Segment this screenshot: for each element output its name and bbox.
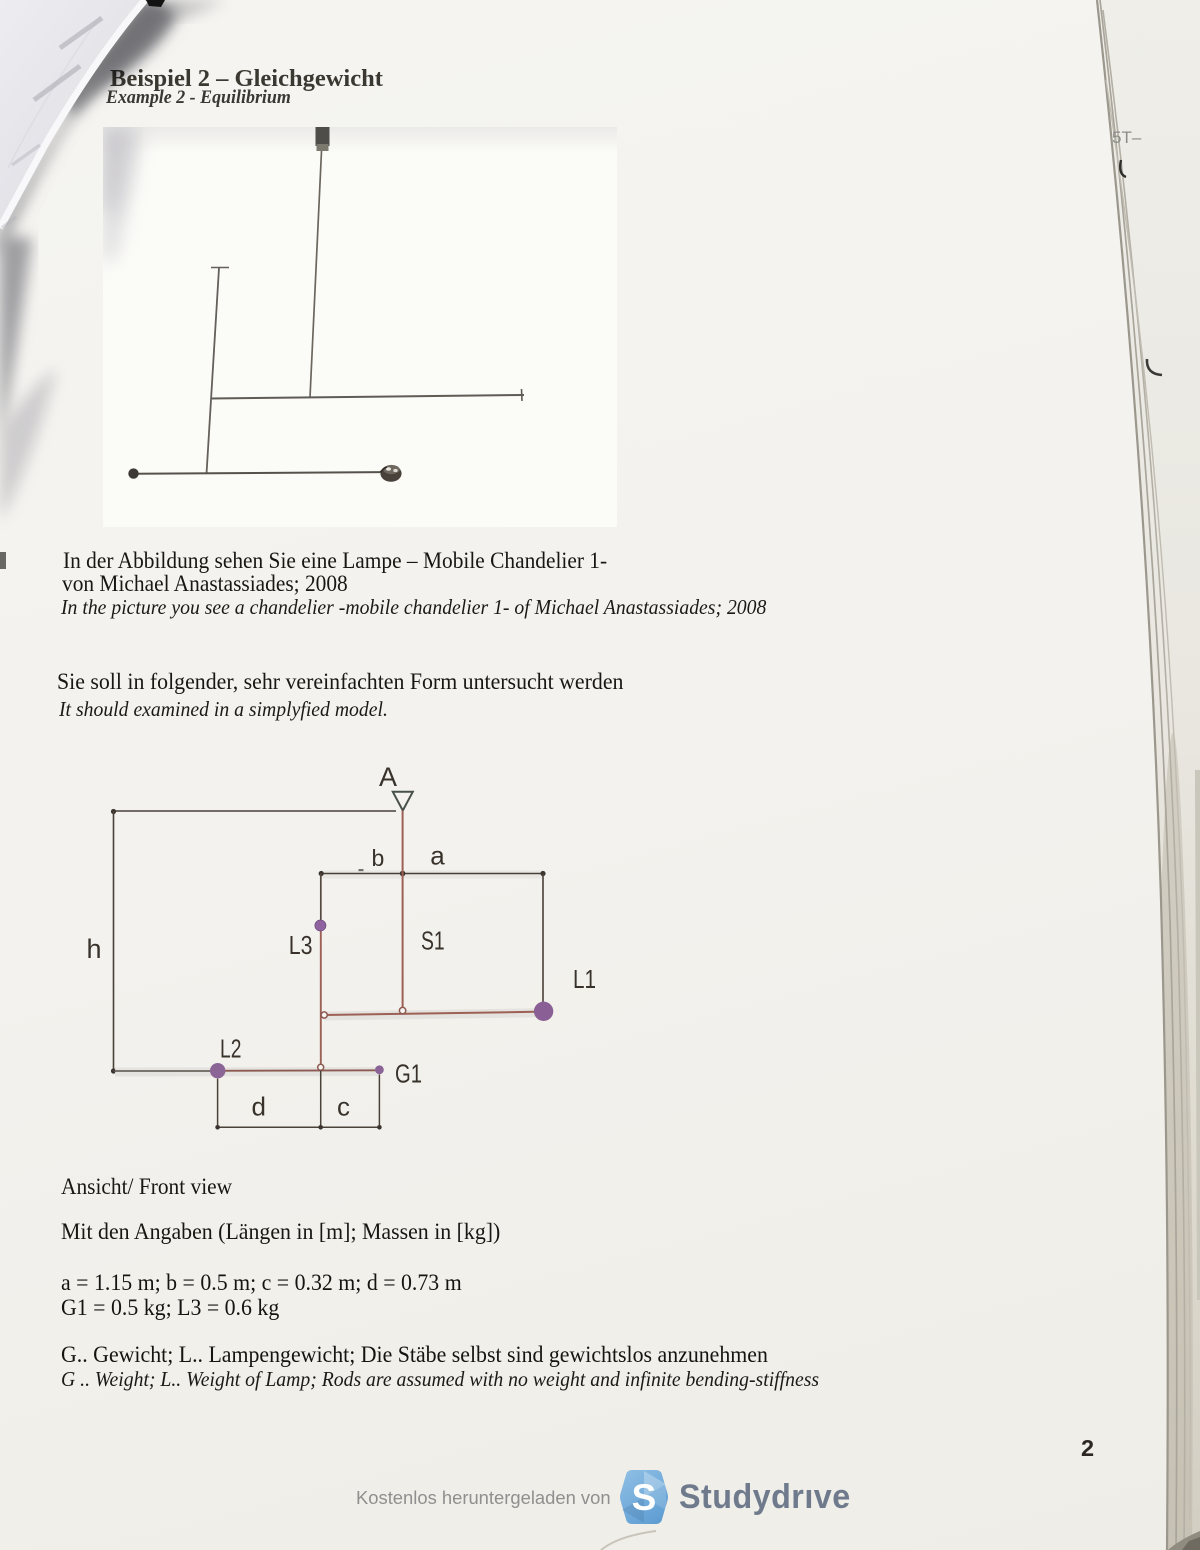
svg-text:5T–: 5T–	[1112, 128, 1142, 147]
